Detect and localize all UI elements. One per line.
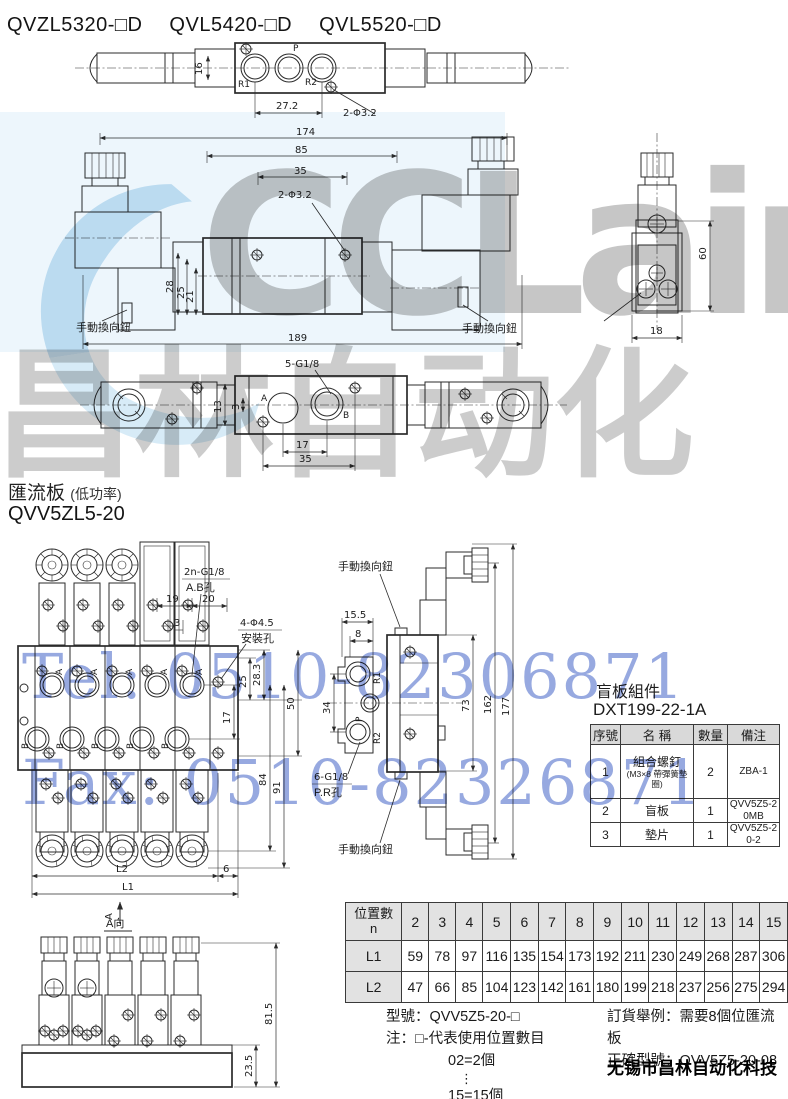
dim-162: 162 — [483, 695, 494, 714]
l1-value-cell: 59 — [402, 941, 429, 972]
ordering-dots: ⋮ — [460, 1072, 545, 1085]
position-count-cell: 6 — [511, 903, 539, 941]
l2-value-cell: 142 — [538, 972, 566, 1003]
bp-1-name: 組合螺釘(M3×8 帶彈簧墊圈) — [621, 745, 694, 799]
front-view-drawing: 174 85 35 2-Φ3.2 — [60, 125, 620, 360]
bp-2-no: 2 — [591, 799, 621, 823]
company-name: 无锡市昌林自动化科技 — [607, 1054, 777, 1079]
dim-19: 19 — [166, 594, 179, 605]
dim-l1: L1 — [122, 882, 134, 893]
label-4-phi45: 4-Φ4.5 — [240, 618, 274, 629]
label-2n-g18: 2n-G1/8 — [184, 567, 225, 578]
l2-value-cell: 123 — [511, 972, 539, 1003]
dim-34: 34 — [322, 701, 333, 714]
position-count-row: 位置數 n 23456789101112131415 — [346, 903, 788, 941]
l2-value-cell: 256 — [704, 972, 732, 1003]
l1-value-cell: 268 — [704, 941, 732, 972]
dim-84: 84 — [258, 773, 269, 786]
dim-8: 8 — [355, 629, 361, 640]
label-5-g18: 5-G1/8 — [285, 359, 319, 370]
manual-knob-label-left: 手動換向鈕 — [76, 320, 131, 334]
l1-value-cell: 192 — [594, 941, 622, 972]
port-label-p: P — [293, 44, 299, 54]
ordering-eg-first: 02=2個 — [448, 1050, 545, 1072]
end-view-drawing: 60 18 — [612, 125, 732, 360]
dim-28-3: 28.3 — [252, 664, 263, 686]
dim-85: 85 — [295, 145, 308, 156]
port-label-b: B — [343, 411, 349, 421]
dim-2-phi3-2: 2-Φ3.2 — [343, 108, 377, 119]
position-count-cell: 3 — [429, 903, 456, 941]
bp-1-name-main: 組合螺釘 — [621, 753, 693, 770]
position-count-cell: 8 — [566, 903, 594, 941]
dim-21: 21 — [185, 290, 196, 303]
dim-17-bottom: 17 — [296, 440, 309, 451]
label-pr-holes: P.R孔 — [314, 786, 342, 799]
section-subtitle: (低功率) — [70, 486, 121, 502]
l1-value-cell: 230 — [649, 941, 677, 972]
position-count-header: 位置數 n — [346, 903, 402, 941]
l2-row: L2 4766851041231421611801992182372562752… — [346, 972, 788, 1003]
bp-3-no: 3 — [591, 823, 621, 847]
ordering-notes-left: 型號：QVV5Z5-20-□ 注：□-代表使用位置數目 02=2個 ⋮ 15=1… — [386, 1006, 545, 1099]
dim-3-bottom: 3 — [231, 404, 242, 410]
dim-27-2: 27.2 — [276, 101, 298, 112]
l2-value-cell: 66 — [429, 972, 456, 1003]
label-ab-holes: A.B孔 — [186, 581, 215, 594]
manifold-b-ports: B B B B B — [21, 727, 196, 760]
dim-60: 60 — [698, 247, 709, 260]
port-a-4: A — [160, 668, 170, 675]
l1-value-cell: 306 — [760, 941, 788, 972]
label-mount-holes: 安裝孔 — [241, 631, 274, 645]
blind-plate-table: 序號 名 稱 數量 備注 1 組合螺釘(M3×8 帶彈簧墊圈) 2 ZBA-1 … — [590, 724, 780, 847]
l2-value-cell: 85 — [456, 972, 483, 1003]
position-count-cell: 13 — [704, 903, 732, 941]
port-a-5: A — [195, 668, 205, 675]
dim-l2: L2 — [116, 864, 128, 875]
l2-value-cell: 104 — [483, 972, 511, 1003]
dim-50: 50 — [286, 697, 297, 710]
section-title: 匯流板 (低功率) — [8, 478, 122, 505]
dim-13: 13 — [213, 400, 224, 413]
l2-value-cell: 199 — [621, 972, 649, 1003]
l1-value-cell: 135 — [511, 941, 539, 972]
position-count-cell: 12 — [677, 903, 705, 941]
l2-value-cell: 47 — [402, 972, 429, 1003]
bp-3-name: 墊片 — [621, 823, 694, 847]
dim-17-manifold: 17 — [222, 711, 233, 724]
aview-valves — [38, 937, 201, 1048]
blind-plate-model: DXT199-22-1A — [593, 700, 706, 720]
section-title-text: 匯流板 — [8, 483, 65, 504]
model-titles: QVZL5320-□DQVL5420-□DQVL5520-□D — [7, 14, 469, 37]
side-port-r1: R1 — [373, 672, 383, 684]
side-knob-label-top: 手動換向鈕 — [338, 559, 393, 573]
model-title-1: QVZL5320-□D — [7, 14, 142, 36]
port-b-4: B — [126, 743, 136, 749]
dim-6: 6 — [223, 864, 229, 875]
port-b-5: B — [161, 743, 171, 749]
dim-35: 35 — [294, 166, 307, 177]
dim-35-bottom: 35 — [299, 454, 312, 465]
l1-value-cell: 287 — [732, 941, 760, 972]
l1-value-cell: 97 — [456, 941, 483, 972]
blind-plate-title: 盲板組件 — [596, 678, 660, 702]
port-label-r1: R1 — [238, 80, 250, 90]
bottom-view-drawing: A B 5-G1/8 13 3 17 35 — [75, 358, 575, 483]
port-a-2: A — [90, 668, 100, 675]
bp-col-note: 備注 — [728, 725, 780, 745]
manifold-a-ports: A A A A A — [35, 664, 205, 697]
bp-1-qty: 2 — [694, 745, 728, 799]
ordering-eg-last: 15=15個 — [448, 1085, 545, 1099]
port-b-1: B — [21, 743, 31, 749]
l2-label: L2 — [346, 972, 402, 1003]
dim-28: 28 — [165, 280, 176, 293]
bp-3-qty: 1 — [694, 823, 728, 847]
position-count-cell: 5 — [483, 903, 511, 941]
dim-16: 16 — [194, 62, 205, 75]
l2-value-cell: 237 — [677, 972, 705, 1003]
l1-value-cell: 211 — [621, 941, 649, 972]
manifold-front-drawing: A A A A A B B B B B — [8, 538, 343, 930]
port-a-1: A — [55, 668, 65, 675]
dim-81-5: 81.5 — [264, 1003, 275, 1025]
corner-bottom: n — [346, 922, 401, 936]
catalog-page: QVZL5320-□DQVL5420-□DQVL5520-□D R1 P R2 … — [0, 0, 788, 1099]
dim-73: 73 — [461, 699, 472, 712]
ordering-note-line: 注：□-代表使用位置數目 — [386, 1028, 545, 1050]
bp-1-note: ZBA-1 — [728, 745, 780, 799]
model-title-3: QVL5520-□D — [319, 14, 442, 36]
dim-23-5: 23.5 — [244, 1055, 255, 1077]
l1-value-cell: 116 — [483, 941, 511, 972]
l2-value-cell: 218 — [649, 972, 677, 1003]
l2-value-cell: 180 — [594, 972, 622, 1003]
side-knob-label-bottom: 手動換向鈕 — [338, 842, 393, 856]
dim-189: 189 — [288, 333, 307, 344]
position-count-cell: 9 — [594, 903, 622, 941]
port-label-a: A — [261, 394, 268, 404]
bp-row-1: 1 組合螺釘(M3×8 帶彈簧墊圈) 2 ZBA-1 — [591, 745, 780, 799]
position-count-cell: 14 — [732, 903, 760, 941]
port-label-r2: R2 — [305, 78, 317, 88]
position-count-cell: 7 — [538, 903, 566, 941]
l1-label: L1 — [346, 941, 402, 972]
bp-row-2: 2 盲板 1 QVV5Z5-20MB — [591, 799, 780, 823]
l1-value-cell: 154 — [538, 941, 566, 972]
bp-2-note: QVV5Z5-20MB — [728, 799, 780, 823]
manifold-side-drawing: R1 P R2 15.5 8 34 6-G1/8 P.R孔 — [300, 538, 590, 888]
bp-3-note: QVV5Z5-20-2 — [728, 823, 780, 847]
dim-3-manifold: 3 — [174, 618, 180, 629]
position-count-cell: 10 — [621, 903, 649, 941]
bp-col-name: 名 稱 — [621, 725, 694, 745]
corner-top: 位置數 — [346, 907, 401, 921]
l2-value-cell: 294 — [760, 972, 788, 1003]
bp-2-name: 盲板 — [621, 799, 694, 823]
dim-15-5: 15.5 — [344, 610, 366, 621]
position-count-cell: 11 — [649, 903, 677, 941]
bp-1-name-sub: (M3×8 帶彈簧墊圈) — [621, 770, 693, 790]
label-6-g18: 6-G1/8 — [314, 772, 348, 783]
aview-label: A向 — [106, 916, 124, 930]
port-b-2: B — [56, 743, 66, 749]
dim-174: 174 — [296, 127, 315, 138]
position-count-cell: 2 — [402, 903, 429, 941]
dim-20: 20 — [202, 594, 215, 605]
dim-25: 25 — [238, 675, 249, 688]
l1-value-cell: 173 — [566, 941, 594, 972]
bp-col-no: 序號 — [591, 725, 621, 745]
position-length-table: 位置數 n 23456789101112131415 L1 5978971161… — [345, 902, 788, 1003]
position-count-cell: 4 — [456, 903, 483, 941]
l1-row: L1 5978971161351541731922112302492682873… — [346, 941, 788, 972]
ordering-model-line: 型號：QVV5Z5-20-□ — [386, 1006, 545, 1028]
port-a-3: A — [125, 668, 135, 675]
manual-knob-label-right: 手動換向鈕 — [462, 321, 517, 335]
bp-2-qty: 1 — [694, 799, 728, 823]
bp-col-qty: 數量 — [694, 725, 728, 745]
dim-2-phi3-2-front: 2-Φ3.2 — [278, 190, 312, 201]
l1-value-cell: 249 — [677, 941, 705, 972]
l1-value-cell: 78 — [429, 941, 456, 972]
dim-18: 18 — [650, 326, 663, 337]
top-view-drawing: R1 P R2 16 27.2 2-Φ3.2 — [75, 40, 575, 128]
ordering-example: 訂貨舉例：需要8個位匯流板 — [607, 1006, 788, 1050]
dim-91: 91 — [272, 781, 283, 794]
position-count-cell: 15 — [760, 903, 788, 941]
model-title-2: QVL5420-□D — [169, 14, 292, 36]
a-direction-drawing: A向 81.5 23.5 — [20, 903, 330, 1098]
l2-value-cell: 161 — [566, 972, 594, 1003]
bp-1-no: 1 — [591, 745, 621, 799]
l2-value-cell: 275 — [732, 972, 760, 1003]
dim-177: 177 — [501, 697, 512, 716]
section-model: QVV5ZL5-20 — [8, 503, 125, 526]
side-port-p: P — [355, 716, 365, 722]
bp-row-3: 3 墊片 1 QVV5Z5-20-2 — [591, 823, 780, 847]
port-b-3: B — [91, 743, 101, 749]
side-port-r2: R2 — [373, 732, 383, 744]
